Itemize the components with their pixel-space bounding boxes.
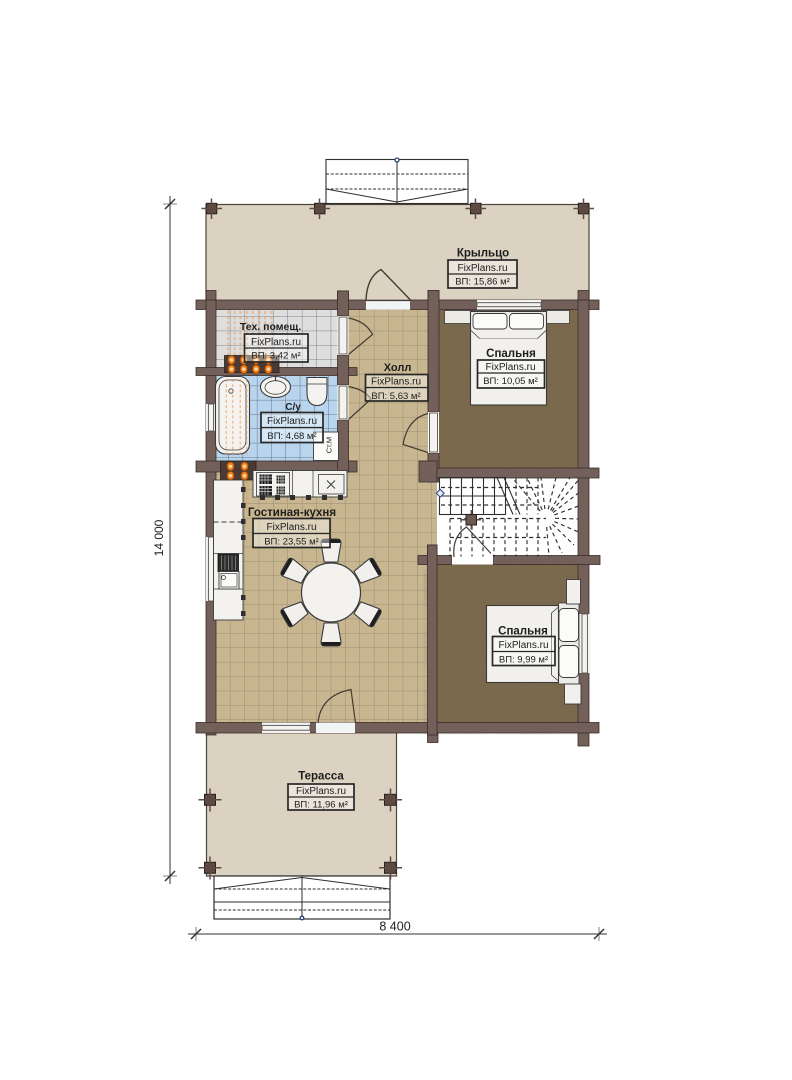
svg-text:Тех. помещ.: Тех. помещ. <box>240 321 301 333</box>
svg-text:ВП: 4,68 м²: ВП: 4,68 м² <box>267 431 316 442</box>
svg-text:ВП: 15,86 м²: ВП: 15,86 м² <box>455 277 510 288</box>
svg-text:ВП: 23,55 м²: ВП: 23,55 м² <box>264 536 319 547</box>
svg-text:Ст.М: Ст.М <box>325 437 334 453</box>
svg-text:Спальня: Спальня <box>486 348 536 360</box>
svg-text:С/у: С/у <box>285 402 301 413</box>
svg-text:FixPlans.ru: FixPlans.ru <box>251 337 301 348</box>
svg-text:ВП: 10,05 м²: ВП: 10,05 м² <box>483 376 538 387</box>
svg-text:FixPlans.ru: FixPlans.ru <box>267 416 317 427</box>
svg-text:Гостиная-кухня: Гостиная-кухня <box>248 507 336 519</box>
svg-text:ВП: 5,63 м²: ВП: 5,63 м² <box>371 391 420 402</box>
svg-text:FixPlans.ru: FixPlans.ru <box>498 640 548 651</box>
svg-text:ВП: 3,42 м²: ВП: 3,42 м² <box>251 351 300 362</box>
svg-text:FixPlans.ru: FixPlans.ru <box>296 786 346 797</box>
svg-text:ВП: 9,99 м²: ВП: 9,99 м² <box>499 654 548 665</box>
svg-text:FixPlans.ru: FixPlans.ru <box>371 376 421 387</box>
svg-text:Холл: Холл <box>384 362 412 374</box>
svg-text:Терасса: Терасса <box>298 771 344 783</box>
svg-text:ВП: 11,96 м²: ВП: 11,96 м² <box>294 799 348 810</box>
svg-text:Крыльцо: Крыльцо <box>457 248 509 260</box>
svg-text:FixPlans.ru: FixPlans.ru <box>457 263 507 274</box>
svg-text:FixPlans.ru: FixPlans.ru <box>266 522 316 533</box>
svg-text:8 400: 8 400 <box>379 920 410 934</box>
svg-text:FixPlans.ru: FixPlans.ru <box>485 362 535 373</box>
svg-text:14 000: 14 000 <box>152 519 166 556</box>
